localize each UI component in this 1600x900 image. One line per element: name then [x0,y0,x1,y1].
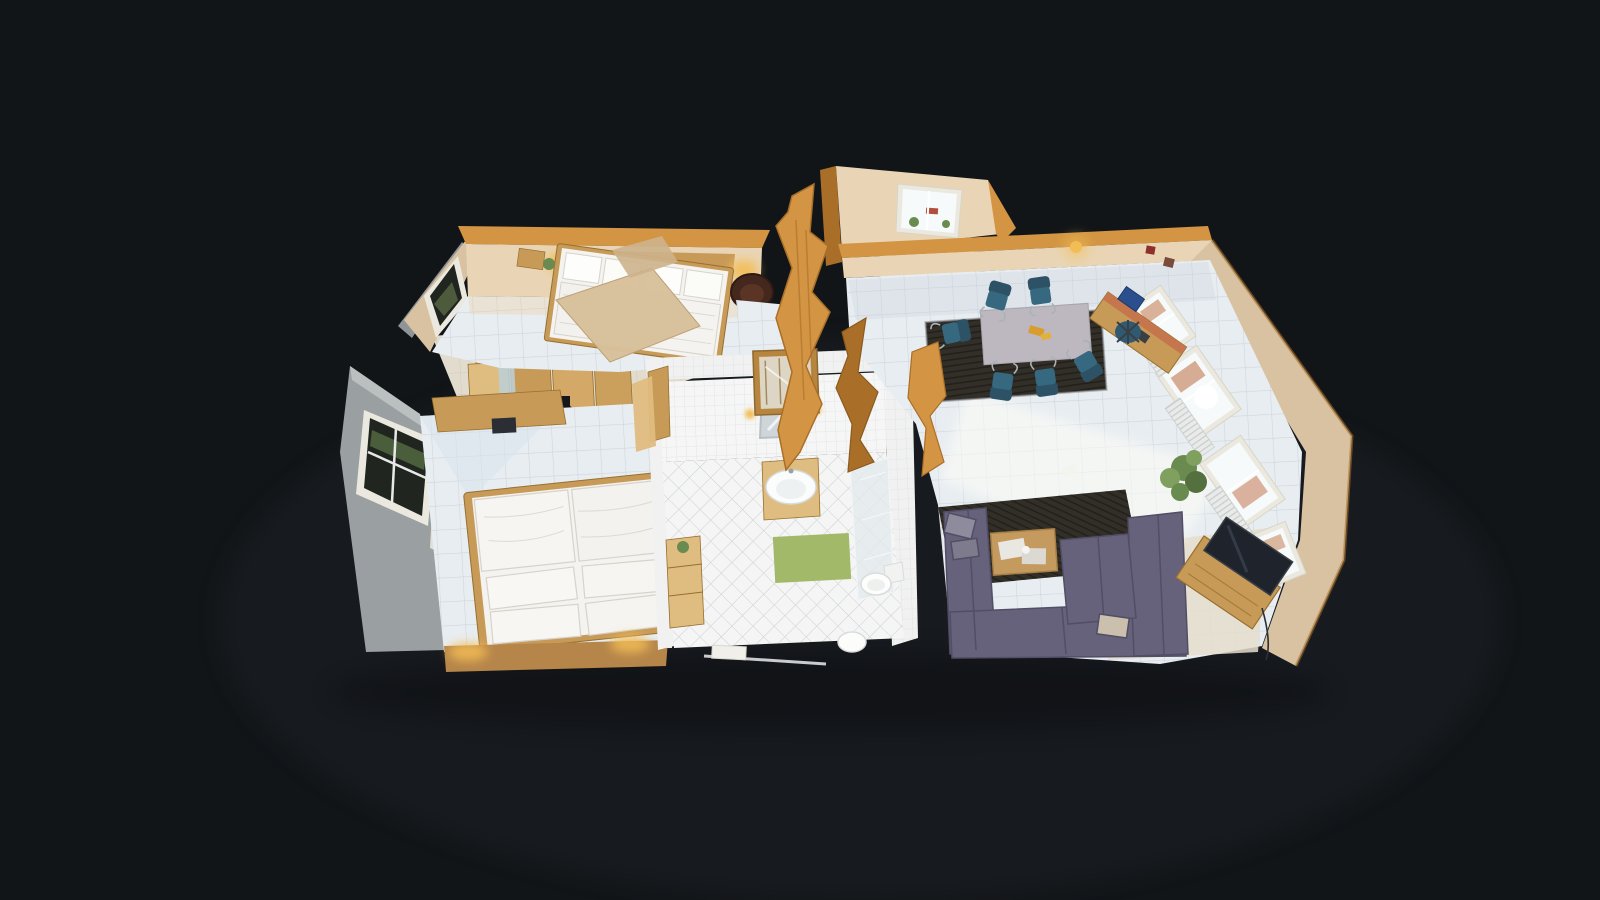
room-master-bedroom[interactable] [398,226,800,372]
bedside-lamp-glow [610,635,650,653]
pillow [563,253,602,284]
duvet [474,490,575,571]
pillow [490,604,580,644]
dining-table [980,303,1092,364]
cabinet-dark-item [492,417,517,433]
pendant-lamp [1070,241,1082,253]
coffee-table [991,529,1058,575]
toilet-fixture-2 [838,632,866,652]
bedside-lamp-glow [448,643,488,661]
shelf-plant [677,541,689,553]
windowsill-plant [942,220,950,228]
wall-picture-red [1145,245,1155,254]
small-plant [543,258,555,270]
dollhouse-viewport[interactable] [0,0,1600,900]
nightstand [517,248,545,269]
windowsill-plant [909,217,919,227]
sconce-light [745,409,755,419]
dormer-window [896,184,962,238]
office-chair [1115,320,1141,344]
open-door-panel [632,376,656,452]
vanity-sink [762,458,820,520]
sofa-pillow [951,538,979,559]
sofa-pillow-beige [1097,614,1129,638]
towel [712,645,747,660]
green-bath-mat [773,533,851,583]
faucet [789,469,794,474]
viewer-stage [0,0,1600,900]
pillow [684,270,723,301]
bath-wood-shelf [666,536,704,628]
apartment-dollhouse[interactable] [340,166,1352,672]
